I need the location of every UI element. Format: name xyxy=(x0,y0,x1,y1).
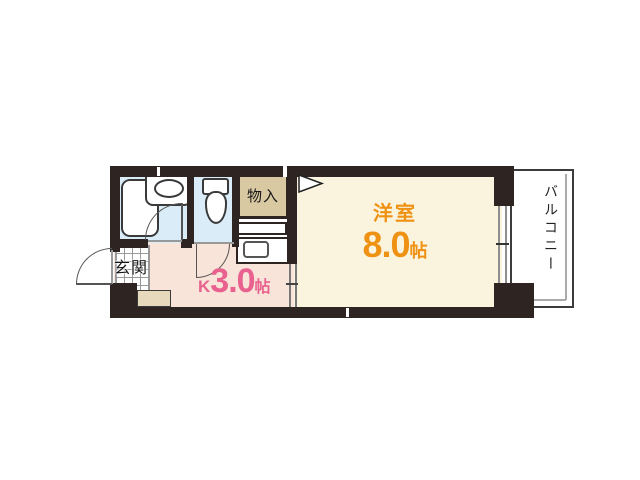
bathroom-door-leaf xyxy=(181,203,183,240)
wall-toilet-closet-divider xyxy=(232,173,239,247)
closet-label: 物入 xyxy=(247,185,279,206)
western-room-label: 洋室 8.0帖 xyxy=(330,197,460,266)
door-direction-flag-icon xyxy=(298,174,325,193)
kitchen-room-sliding-door-rail xyxy=(286,283,298,285)
entrance-step xyxy=(137,290,171,307)
kitchen-label: K3.0帖 xyxy=(198,262,271,301)
toilet-door-leaf xyxy=(196,244,198,278)
wall-bathroom-bottom-left xyxy=(118,239,148,248)
wall-right-pier-top xyxy=(494,166,514,206)
wall-right-corner-block xyxy=(494,283,534,318)
bathroom-sink-bowl-icon xyxy=(154,179,184,198)
entrance-door-arc xyxy=(76,248,112,284)
closet-shelf xyxy=(237,222,287,235)
western-room-area: 8.0 xyxy=(362,224,409,265)
wall-slit-top-2 xyxy=(283,166,287,177)
balcony-inner-line-right xyxy=(565,174,567,300)
wall-slit-bottom xyxy=(346,308,349,317)
kitchen-label-unit: 帖 xyxy=(255,273,271,297)
entrance-door-leaf xyxy=(76,283,112,285)
kitchen-room-sliding-door-right xyxy=(295,264,297,307)
balcony-label: バルコニー xyxy=(541,184,561,306)
closet-box: 物入 xyxy=(237,172,289,219)
entrance-label: 玄関 xyxy=(114,254,148,278)
western-room-name: 洋室 xyxy=(330,197,460,226)
kitchen-sink-icon xyxy=(243,241,269,258)
floor-plan: バルコニー 物入 xyxy=(0,0,640,480)
wall-bottom xyxy=(110,307,514,318)
kitchen-label-k: K xyxy=(198,277,210,297)
wall-kitchen-room-divider xyxy=(287,166,297,264)
wall-slit-top-1 xyxy=(157,167,160,176)
wall-bathroom-bottom-right xyxy=(181,239,192,248)
kitchen-room-sliding-door-left xyxy=(289,264,291,307)
western-room-unit: 帖 xyxy=(410,241,428,261)
kitchen-label-area: 3.0 xyxy=(210,262,254,301)
wall-left-corner-block xyxy=(110,283,137,318)
bathroom-door-threshold xyxy=(148,240,182,242)
wall-bath-toilet-divider xyxy=(187,173,194,244)
balcony-window-meeting-rail xyxy=(496,243,509,245)
